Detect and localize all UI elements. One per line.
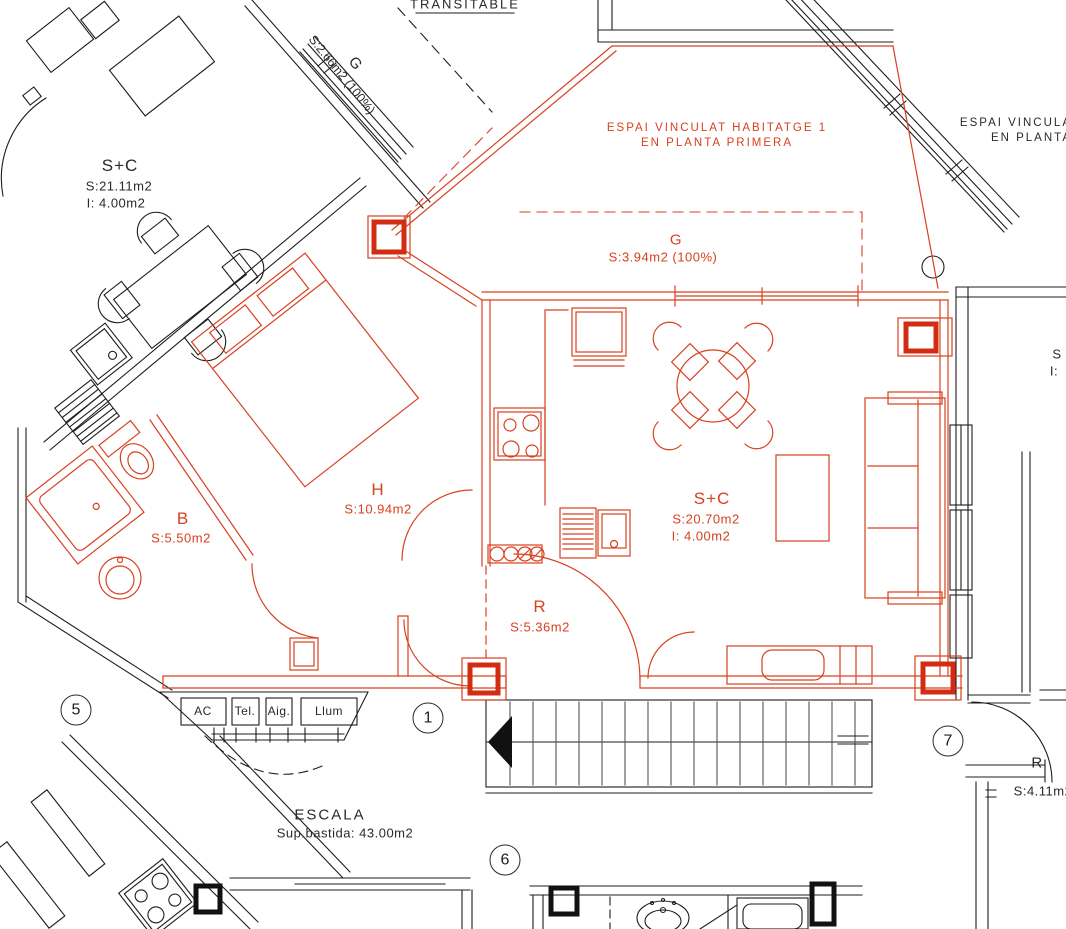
pillar bbox=[906, 324, 936, 351]
label-espai-right-1: ESPAI VINCULA bbox=[960, 117, 1066, 129]
pillar bbox=[374, 222, 404, 252]
plan-marker-7: 7 bbox=[933, 726, 964, 757]
dishwasher bbox=[560, 508, 596, 558]
rug bbox=[109, 16, 214, 116]
label-escala-area: Sup.bastida: 43.00m2 bbox=[277, 826, 413, 841]
stairs bbox=[486, 700, 872, 793]
kitchen-fixtures bbox=[488, 308, 630, 563]
room-label-b: B bbox=[177, 509, 189, 529]
plan-marker-6: 6 bbox=[490, 845, 521, 876]
room-label-sc-main: S+C bbox=[694, 489, 731, 509]
label-espai-vinculat-2: EN PLANTA PRIMERA bbox=[641, 137, 793, 149]
chair bbox=[672, 392, 709, 429]
label-espai-vinculat-1: ESPAI VINCULAT HABITATGE 1 bbox=[607, 122, 827, 134]
plan-marker-5: 5 bbox=[61, 695, 92, 726]
chair bbox=[181, 317, 233, 369]
round-dining-table bbox=[677, 350, 749, 422]
door-arc-bedroom bbox=[402, 490, 472, 560]
sink bbox=[598, 510, 630, 556]
furniture bbox=[81, 1, 119, 38]
label-espai-right-2: EN PLANTA bbox=[991, 132, 1066, 144]
toilet bbox=[99, 421, 164, 489]
storage-label-sc-main: I: 4.00m2 bbox=[672, 529, 731, 544]
terrace-dashed-red bbox=[404, 128, 862, 292]
plan-marker-1: 1 bbox=[413, 703, 444, 734]
chair bbox=[130, 205, 182, 257]
utility-box-label-aig: Aig. bbox=[268, 704, 291, 718]
utility-box-label-tel: Tel. bbox=[235, 704, 256, 718]
door-arc bbox=[1, 98, 46, 196]
door-jamb bbox=[23, 87, 41, 105]
chair bbox=[91, 278, 143, 330]
bathroom-fixtures bbox=[26, 421, 164, 599]
chair bbox=[719, 343, 756, 380]
neighbor-apartment-right bbox=[950, 287, 1066, 929]
storage-label-sc-neighbor: I: 4.00m2 bbox=[87, 196, 146, 211]
door-arc-bathroom bbox=[252, 564, 318, 638]
shower-tray bbox=[737, 898, 808, 929]
main-unit-walls-red bbox=[150, 46, 962, 688]
area-label-r-main: S:5.36m2 bbox=[510, 620, 570, 635]
shower bbox=[26, 446, 144, 564]
door-arc-entry bbox=[514, 554, 640, 680]
utility-box-label-ac: AC bbox=[194, 704, 212, 718]
chair bbox=[719, 392, 756, 429]
dashed-boundary bbox=[398, 8, 492, 112]
room-label-r-main: R bbox=[533, 597, 546, 617]
washbasin-round bbox=[99, 557, 141, 599]
utility-box-label-llum: Llum bbox=[315, 704, 343, 718]
room-label-g-main: G bbox=[670, 232, 682, 249]
floor-plan-drawing bbox=[0, 0, 1066, 929]
pillar bbox=[196, 886, 220, 912]
area-label-h: S:10.94m2 bbox=[344, 502, 411, 517]
room-label-r-right: R bbox=[1031, 755, 1042, 772]
area-label-r-right: S:4.11m2 bbox=[1014, 784, 1066, 799]
terrace-rail-top-right bbox=[786, 0, 1019, 232]
floor-plan-page: TRANSITABLE G S:2.66m2 (100%) ESPAI VINC… bbox=[0, 0, 1066, 929]
bed bbox=[192, 253, 419, 487]
pillar bbox=[470, 665, 498, 693]
tv-unit bbox=[727, 646, 872, 684]
pillar bbox=[551, 888, 577, 914]
fridge bbox=[572, 308, 626, 356]
washbasin bbox=[637, 901, 689, 929]
chair bbox=[672, 344, 709, 381]
area-label-sc-neighbor: S:21.11m2 bbox=[86, 179, 152, 194]
pillar bbox=[812, 884, 834, 924]
edge-partial-i: I: bbox=[1050, 364, 1058, 379]
stairs-direction-arrow bbox=[488, 716, 512, 768]
room-label-sc-neighbor: S+C bbox=[102, 156, 139, 176]
area-label-b: S:5.50m2 bbox=[151, 531, 211, 546]
coffee-table bbox=[776, 455, 829, 541]
neighbor-apartments-bottom bbox=[0, 735, 862, 929]
wall bbox=[18, 428, 172, 698]
cooktop bbox=[494, 408, 545, 460]
cooktop bbox=[119, 859, 198, 929]
pillars-red bbox=[368, 216, 961, 700]
dining-table bbox=[114, 226, 247, 349]
label-transitable: TRANSITABLE bbox=[410, 0, 520, 12]
room-label-h: H bbox=[371, 480, 384, 500]
edge-partial-s: S bbox=[1052, 347, 1061, 362]
label-escala: ESCALA bbox=[294, 807, 365, 824]
kitchen-sink-unit bbox=[33, 323, 156, 444]
door-arc bbox=[648, 632, 694, 678]
area-label-sc-main: S:20.70m2 bbox=[672, 512, 739, 527]
sofa bbox=[865, 392, 945, 604]
area-label-g-main: S:3.94m2 (100%) bbox=[609, 250, 718, 265]
